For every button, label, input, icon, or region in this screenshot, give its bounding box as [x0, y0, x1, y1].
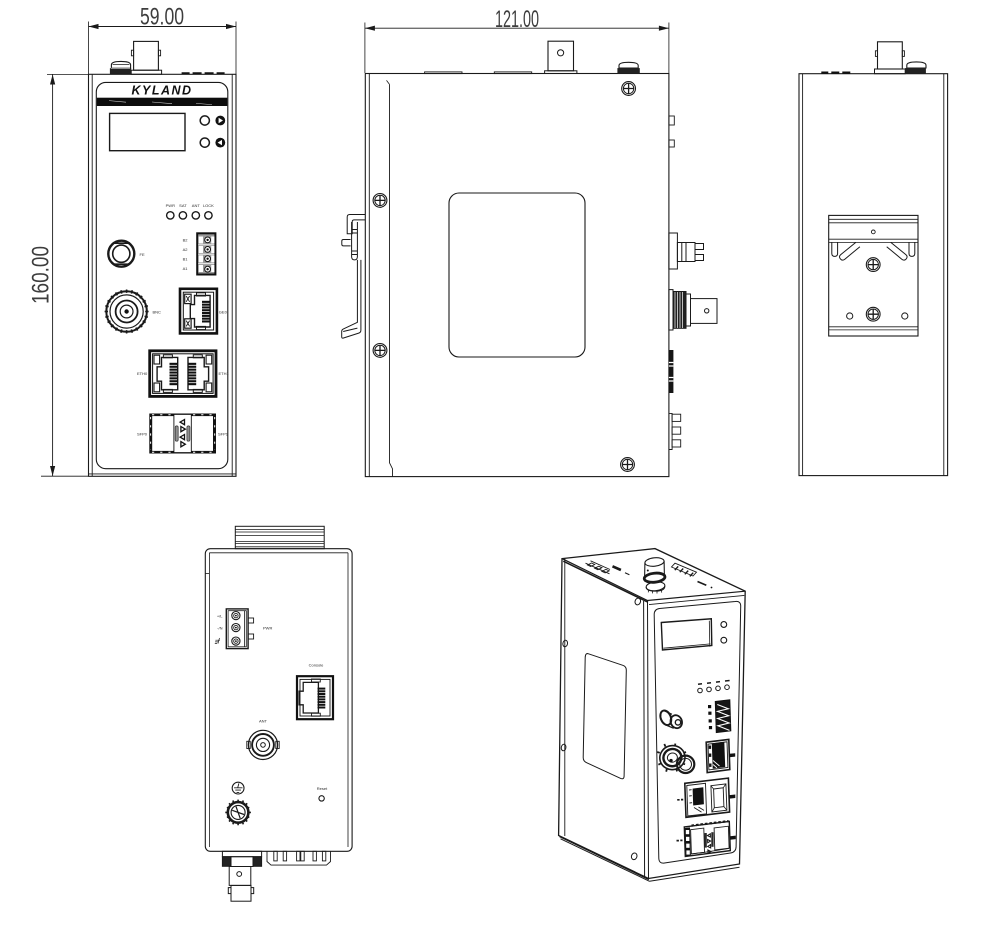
svg-text:GE0: GE0: [219, 310, 228, 315]
svg-text:SAT: SAT: [179, 203, 187, 208]
svg-text:ETH1: ETH1: [219, 371, 230, 376]
svg-text:160.00: 160.00: [28, 246, 55, 304]
svg-text:121.00: 121.00: [495, 6, 539, 33]
svg-text:A2: A2: [183, 247, 189, 252]
svg-text:-/N: -/N: [217, 625, 222, 630]
svg-text:PWR: PWR: [166, 203, 175, 208]
svg-text:ETH0: ETH0: [137, 371, 148, 376]
svg-text:B2: B2: [183, 237, 189, 242]
svg-text:Reset: Reset: [317, 786, 328, 791]
svg-text:+/L: +/L: [217, 613, 223, 618]
svg-text:SFP1: SFP1: [218, 431, 229, 436]
svg-text:SFP0: SFP0: [137, 431, 148, 436]
svg-text:ANT: ANT: [259, 719, 268, 724]
svg-text:FE: FE: [140, 252, 145, 257]
svg-text:BNC: BNC: [153, 310, 162, 315]
svg-text:KYLAND: KYLAND: [131, 84, 192, 98]
svg-text:ANT: ANT: [192, 203, 201, 208]
svg-text:LOCK: LOCK: [203, 203, 214, 208]
svg-text:B1: B1: [183, 256, 189, 261]
svg-text:A1: A1: [183, 266, 189, 271]
svg-text:PWR: PWR: [263, 626, 272, 631]
svg-text:Console: Console: [309, 663, 324, 668]
